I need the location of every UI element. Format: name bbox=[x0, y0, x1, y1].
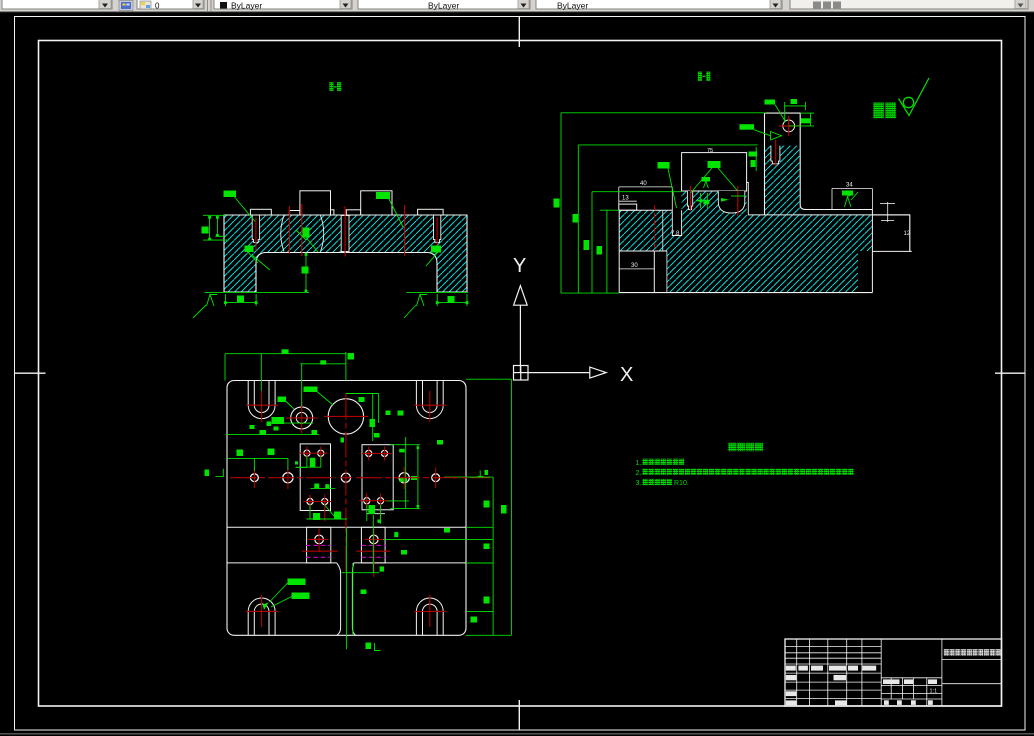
svg-text:30: 30 bbox=[631, 263, 638, 269]
svg-text:7.8: 7.8 bbox=[671, 231, 680, 237]
svg-text:R10.: R10. bbox=[674, 480, 689, 487]
svg-text:Y: Y bbox=[513, 255, 526, 277]
svg-text:ByLayer: ByLayer bbox=[557, 1, 588, 11]
svg-text:75: 75 bbox=[707, 148, 713, 154]
svg-text:3.: 3. bbox=[636, 480, 642, 487]
svg-text:X: X bbox=[620, 364, 633, 386]
svg-text:2.: 2. bbox=[636, 470, 642, 477]
svg-text:13: 13 bbox=[622, 196, 629, 202]
svg-text:0: 0 bbox=[155, 2, 160, 11]
svg-text:1:1: 1:1 bbox=[930, 689, 938, 695]
svg-text:40: 40 bbox=[640, 181, 647, 187]
svg-text:1.: 1. bbox=[636, 460, 642, 467]
svg-text:ByLayer: ByLayer bbox=[428, 1, 459, 11]
svg-text:ByLayer: ByLayer bbox=[231, 1, 262, 11]
svg-text:12: 12 bbox=[904, 231, 911, 237]
svg-text:34: 34 bbox=[846, 183, 853, 189]
